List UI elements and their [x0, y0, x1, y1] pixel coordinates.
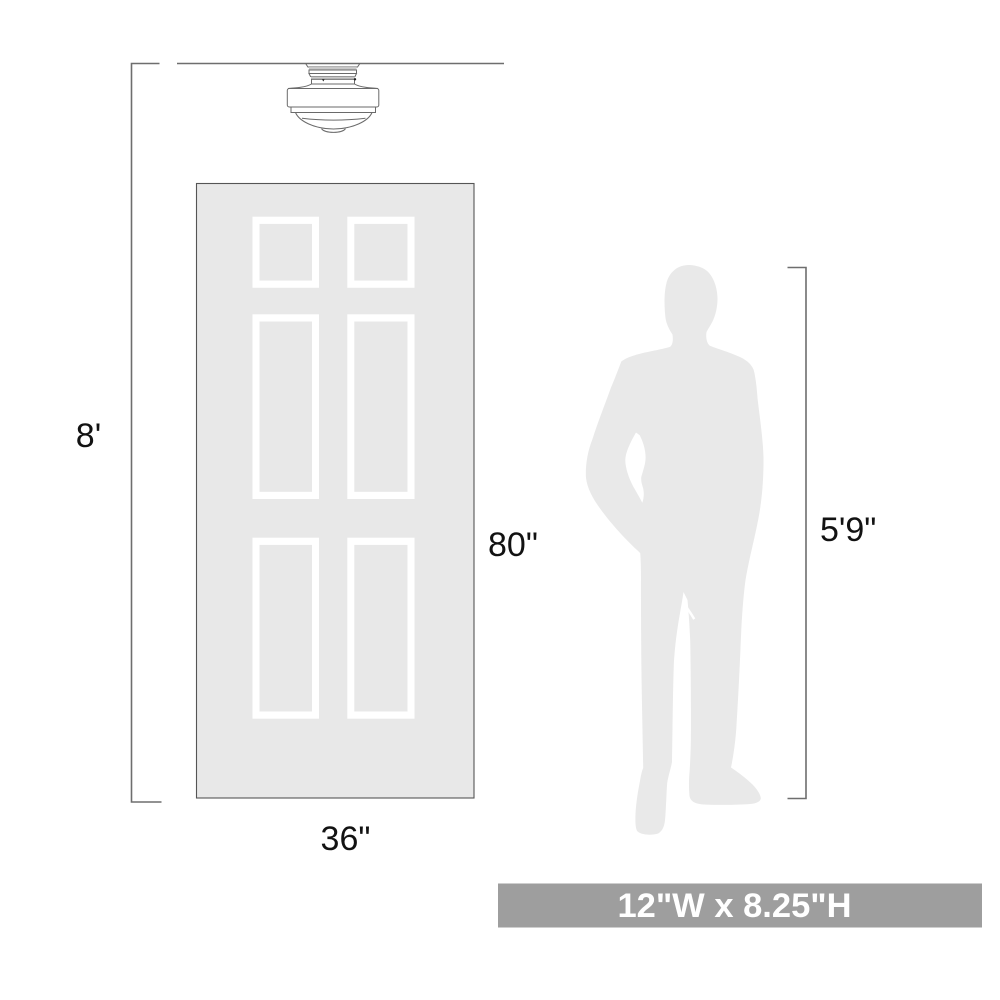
svg-text:8': 8'	[76, 417, 101, 455]
svg-text:36": 36"	[321, 820, 371, 858]
svg-text:80": 80"	[488, 526, 538, 564]
svg-text:5'9": 5'9"	[820, 511, 876, 549]
svg-text:12"W x 8.25"H: 12"W x 8.25"H	[617, 887, 851, 925]
